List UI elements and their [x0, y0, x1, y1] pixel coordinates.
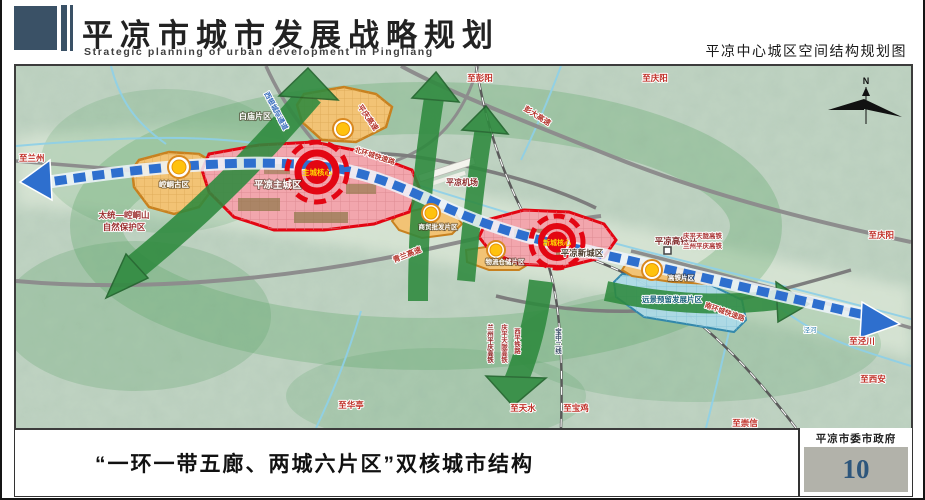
footer: “一环一带五廊、两城六片区”双核城市结构 平凉市委市政府 10	[14, 430, 913, 497]
zone-label-new-city: 平凉新城区	[561, 248, 604, 258]
structure-caption: “一环一带五廊、两城六片区”双核城市结构	[95, 448, 534, 478]
logo-bar-thin	[70, 5, 73, 51]
zone-label-kongtong: 崆峒古区	[159, 179, 189, 189]
reserve-label-line2: 自然保护区	[103, 222, 146, 232]
planning-sheet: 平凉市城市发展战略规划 Strategic planning of urban …	[0, 0, 925, 500]
hsr-station-marker	[664, 247, 671, 254]
zone-label-commerce: 商贸批发片区	[419, 222, 459, 231]
dest-lanzhou: 至兰州	[19, 153, 45, 163]
river-label: 泾河	[804, 326, 818, 334]
page-number-box: 10	[804, 447, 908, 492]
dest-xian: 至西安	[860, 374, 886, 384]
logo-bar	[61, 5, 67, 51]
gov-box: 平凉市委市政府 10	[798, 428, 912, 496]
main-core-label: 主城核心	[302, 167, 332, 177]
dest-baoji: 至宝鸡	[563, 403, 589, 413]
map-frame: 主城核心 新城核心 平凉主城区 平凉新城区 崆峒古区 白庙片区 商贸批发	[14, 64, 913, 430]
reserve-label-line1: 太统—崆峒山	[97, 210, 149, 220]
new-core-label: 新城核心	[543, 238, 571, 247]
logo-square	[14, 6, 57, 50]
dest-qingyang-top: 至庆阳	[642, 73, 668, 83]
dest-pengyang: 至彭阳	[467, 73, 493, 83]
zone-label-baimiao: 白庙片区	[239, 111, 271, 121]
dest-tianshui: 至天水	[510, 403, 536, 413]
zone-label-reserved: 远景预留发展片区	[642, 294, 702, 304]
rail-label-qptl: 庆平天陇高铁	[682, 231, 723, 240]
zone-label-hsr: 高铁片区	[668, 273, 695, 282]
rail-label-lzpq: 兰州平庆高铁	[683, 241, 723, 250]
document-subtitle: Strategic planning of urban development …	[84, 46, 434, 58]
planning-map: 主城核心 新城核心 平凉主城区 平凉新城区 崆峒古区 白庙片区 商贸批发	[16, 66, 911, 428]
dest-qingyang-right: 至庆阳	[868, 230, 894, 240]
compass-north-label: N	[863, 76, 870, 86]
dest-huating: 至华亭	[338, 400, 364, 410]
zone-label-logistics: 物流仓储片区	[486, 257, 526, 266]
header: 平凉市城市发展战略规划 Strategic planning of urban …	[2, 0, 923, 64]
map-caption: 平凉中心城区空间结构规划图	[706, 41, 908, 61]
airport-label: 平凉机场	[446, 177, 478, 187]
dest-jingchuan: 至泾川	[849, 336, 875, 346]
page-number: 10	[843, 454, 870, 485]
dest-chongxin: 至崇信	[732, 418, 758, 428]
agency-label: 平凉市委市政府	[800, 428, 912, 446]
zone-label-main-city: 平凉主城区	[254, 179, 302, 191]
